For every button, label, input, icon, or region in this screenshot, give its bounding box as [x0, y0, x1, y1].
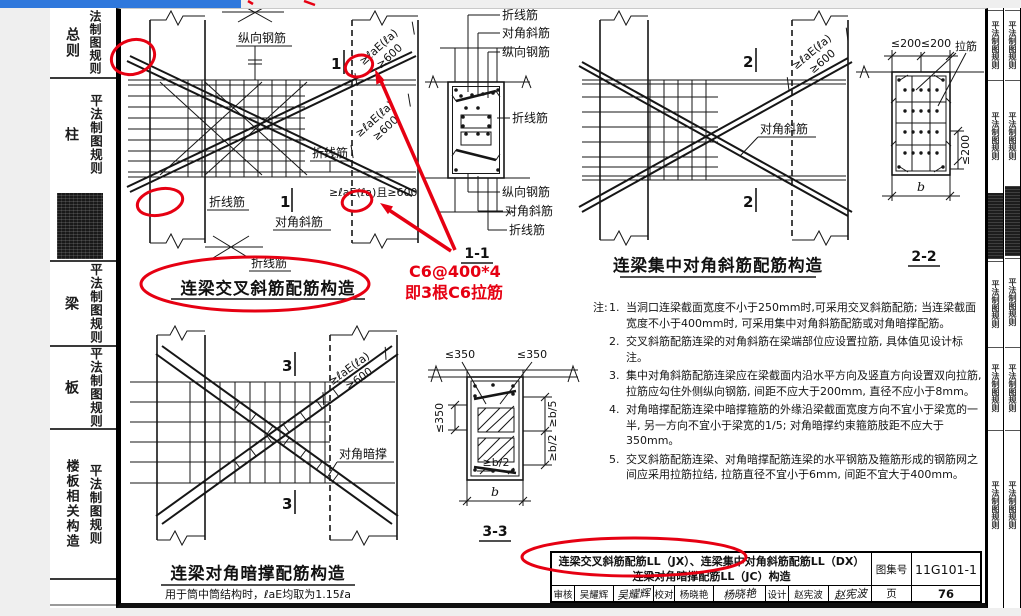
svg-text:≥b/2: ≥b/2 — [546, 435, 559, 462]
selected-tab-dark-block — [57, 193, 103, 259]
dim-ge-b5: ≥b/2 — [546, 435, 559, 462]
note-number: 4. — [609, 402, 620, 418]
svg-text:≥b/5: ≥b/5 — [546, 401, 559, 428]
design-label: 设计 — [766, 586, 789, 601]
label-folded-bar: 折线筋 — [209, 194, 245, 209]
svg-text:≤350: ≤350 — [433, 403, 446, 433]
figure-jx-section-1-1: 折线筋 对角斜筋 纵向钢筋 折线筋 纵向钢筋 对角斜筋 折线筋 1-1 — [425, 9, 553, 263]
right-tab: 平法制图规则 — [1005, 258, 1020, 345]
tab-general-label: 总则 — [62, 27, 82, 59]
right-tab-column: 平法制图规则 平法制图规则 平法制图规则 平法制图规则 平法制图规则 — [988, 8, 1004, 608]
dim-ge-b5: ≥b/5 — [546, 401, 559, 428]
section-marker-3: 3 — [282, 357, 292, 375]
section-marker-2: 2 — [743, 53, 753, 71]
label-diagonal-bar: 对角斜筋 — [760, 121, 808, 136]
section-label-1-1: 1-1 — [464, 246, 489, 262]
label-folded-bar: 折线筋 — [502, 9, 538, 22]
dim-le200-vert: ≤200 — [959, 135, 972, 165]
page-number: 76 — [912, 586, 980, 601]
note-item: 1. 当洞口连梁截面宽度不小于250mm时,可采用交叉斜筋配筋; 当连梁截面宽度… — [593, 300, 983, 331]
tab-slab-sub: 平法制图规则 — [86, 347, 105, 428]
tab-slab-related-label: 楼板相关构造 — [62, 459, 81, 549]
dim-le350: ≤350 — [445, 348, 475, 361]
section-marker-2: 2 — [743, 193, 753, 211]
right-tab-dark-block — [1005, 186, 1020, 256]
tab-divider — [50, 578, 116, 580]
credits-row: 审核 吴耀辉 吴耀辉 校对 杨晓艳 杨晓艳 设计 赵宪波 赵宪波 — [552, 586, 871, 601]
label-folded-bar: 折线筋 — [251, 255, 287, 270]
right-tab: 平法制图规则 — [988, 261, 1003, 345]
note-text: 集中对角斜筋配筋连梁应在梁截面内沿水平方向及竖直方向设置双向拉筋, 拉筋应勾住外… — [626, 369, 982, 398]
dim-le200: ≤200 — [891, 37, 921, 50]
label-longitudinal: 纵向钢筋 — [502, 184, 550, 199]
check-label: 校对 — [654, 586, 675, 601]
dim-anchor-length: ≥ℓaE(ℓa) ≥600 — [311, 339, 395, 410]
note-number: 1. — [609, 300, 620, 316]
tab-slab-label: 板 — [61, 380, 81, 396]
top-blue-bar — [0, 0, 241, 8]
figure-dx-section-2-2: ≤200 ≤200 拉筋 ≤200 b 2-2 — [856, 37, 984, 266]
tab-beam: 梁 平法制图规则 — [50, 262, 116, 345]
checker-name: 杨晓艳 — [675, 586, 714, 601]
svg-text:≤200: ≤200 — [959, 135, 972, 165]
label-diagonal-bar: 对角斜筋 — [502, 25, 550, 40]
designer-signature: 赵宪波 — [829, 586, 871, 601]
tab-column-label: 柱 — [61, 127, 81, 143]
note-text: 交叉斜筋配筋连梁的对角斜筋在梁端部位应设置拉筋, 具体值见设计标注。 — [626, 335, 963, 364]
notes-list: 1. 当洞口连梁截面宽度不小于250mm时,可采用交叉斜筋配筋; 当连梁截面宽度… — [593, 300, 983, 483]
label-folded-bar: 折线筋 — [509, 222, 545, 237]
figure-notes: 注: 1. 当洞口连梁截面宽度不小于250mm时,可采用交叉斜筋配筋; 当连梁截… — [593, 300, 983, 486]
right-tab: 平法制图规则 — [1005, 430, 1020, 578]
figure-jx-title: 连梁交叉斜筋配筋构造 — [181, 278, 356, 298]
label-folded-bar: 折线筋 — [512, 110, 548, 125]
tab-column: 柱 平法制图规则 — [50, 79, 116, 190]
label-diagonal-bar: 对角斜筋 — [275, 214, 323, 229]
dim-anchor-and-600: ≥ℓaE(ℓa)且≥600 — [329, 186, 418, 199]
note-item: 4. 对角暗撑配筋连梁中暗撑箍筋的外缘沿梁截面宽度方向不宜小于梁宽的一半, 另一… — [593, 402, 983, 449]
figure-jc-title: 连梁对角暗撑配筋构造 — [171, 563, 346, 583]
note-text: 当洞口连梁截面宽度不小于250mm时,可采用交叉斜筋配筋; 当连梁截面宽度不小于… — [626, 301, 976, 330]
dim-le200: ≤200 — [921, 37, 951, 50]
figure-jx-plan: 纵向钢筋 1 1 ≥ℓaE(ℓa) ≥600 ≥ℓaE(ℓa) ≥600 ≥ℓa… — [127, 9, 424, 299]
dim-ge-b2: ≥b/2 — [483, 456, 510, 469]
folded-bar-symbol — [205, 236, 263, 258]
label-longitudinal: 纵向钢筋 — [238, 30, 286, 45]
atlas-number: 11G101-1 — [912, 553, 980, 585]
dim-b: b — [491, 484, 499, 499]
label-longitudinal: 纵向钢筋 — [502, 44, 550, 59]
label-tie-bar: 拉筋 — [955, 39, 977, 53]
figure-dx-title: 连梁集中对角斜筋配筋构造 — [613, 255, 823, 275]
figure-jc-plan: 3 3 ≥ℓaE(ℓa) ≥600 对角暗撑 连梁对角暗撑配筋构造 用于筒中筒结… — [130, 326, 398, 601]
note-text: 对角暗撑配筋连梁中暗撑箍筋的外缘沿梁截面宽度方向不宜小于梁宽的一半, 另一方向不… — [626, 403, 978, 447]
sheet-title-line1: 连梁交叉斜筋配筋LL（JX）、连梁集中对角斜筋配筋LL（DX） — [559, 554, 865, 569]
review-label: 审核 — [552, 586, 575, 601]
right-tab-dark-block — [988, 193, 1003, 259]
atlas-label: 图集号 — [872, 553, 912, 585]
atlas-number-row: 图集号 11G101-1 — [872, 553, 980, 586]
right-tab: 平法制图规则 — [1005, 80, 1020, 190]
note-item: 5. 交叉斜筋配筋连梁、对角暗撑配筋连梁的水平钢筋及箍筋形成的钢筋网之间应采用拉… — [593, 452, 983, 483]
figure-jc-section-3-3: ≤350 ≤350 ≤350 ≥b/5 ≥b/2 ≥b/2 b 3-3 — [428, 348, 579, 541]
scanned-atlas-page-view: { "colors": { "top_bar_blue": "#2f78dc",… — [0, 0, 1021, 616]
right-tab-column: 平法制图规则 平法制图规则 平法制图规则 平法制图规则 平法制图规则 — [1005, 8, 1021, 608]
section-label-3-3: 3-3 — [482, 524, 507, 540]
section-marker-1: 1 — [331, 55, 341, 73]
tab-slab: 板 平法制图规则 — [50, 347, 116, 428]
tab-general: 总则 法制图规则 — [50, 8, 116, 77]
figure-dx-plan: 2 2 ≥ℓaE(ℓa) ≥600 对角斜筋 连梁集中对角斜筋配筋构造 — [579, 11, 857, 277]
right-tab: 平法制图规则 — [988, 347, 1003, 428]
tab-beam-label: 梁 — [61, 296, 81, 312]
note-text: 交叉斜筋配筋连梁、对角暗撑配筋连梁的水平钢筋及箍筋形成的钢筋网之间应采用拉筋拉结… — [626, 453, 978, 482]
title-block: 连梁交叉斜筋配筋LL（JX）、连梁集中对角斜筋配筋LL（DX） 连梁对角暗撑配筋… — [550, 551, 982, 603]
label-diagonal-bar: 对角斜筋 — [505, 203, 553, 218]
section-label-2-2: 2-2 — [911, 249, 936, 265]
note-item: 2. 交叉斜筋配筋连梁的对角斜筋在梁端部位应设置拉筋, 具体值见设计标注。 — [593, 334, 983, 365]
red-stray-marks — [248, 1, 315, 5]
reviewer-name: 吴耀辉 — [575, 586, 614, 601]
folded-bar-symbol — [222, 9, 284, 22]
checker-signature: 杨晓艳 — [714, 586, 766, 601]
page-number-row: 页 76 — [872, 586, 980, 601]
dim-le350: ≤350 — [517, 348, 547, 361]
right-tab: 平法制图规则 — [1005, 10, 1020, 78]
tab-slab-related-sub: 平法制图规则 — [86, 464, 105, 545]
right-index-tabs: 平法制图规则 平法制图规则 平法制图规则 平法制图规则 平法制图规则 平法制图规… — [988, 8, 1021, 608]
note-item: 3. 集中对角斜筋配筋连梁应在梁截面内沿水平方向及竖直方向设置双向拉筋, 拉筋应… — [593, 368, 983, 399]
tab-general-sub: 法制图规则 — [87, 10, 104, 75]
brace-section-hatch — [478, 406, 514, 462]
sheet-title: 连梁交叉斜筋配筋LL（JX）、连梁集中对角斜筋配筋LL（DX） 连梁对角暗撑配筋… — [552, 553, 871, 586]
reviewer-signature: 吴耀辉 — [614, 586, 654, 601]
section-marker-3: 3 — [282, 495, 292, 513]
dim-b: b — [917, 179, 925, 194]
right-tab: 平法制图规则 — [988, 80, 1003, 190]
sheet-title-line2: 连梁对角暗撑配筋LL（JC）构造 — [632, 569, 790, 584]
page-label: 页 — [872, 586, 912, 601]
dim-anchor-length: ≥ℓaE(ℓa) ≥600 — [339, 86, 419, 162]
label-diagonal-brace: 对角暗撑 — [339, 446, 387, 461]
tab-slab-related: 楼板相关构造 平法制图规则 — [50, 430, 116, 578]
dim-le350-vert: ≤350 — [433, 403, 446, 433]
right-tab: 平法制图规则 — [988, 10, 1003, 78]
tab-column-sub: 平法制图规则 — [86, 94, 105, 175]
atlas-sheet: 纵向钢筋 1 1 ≥ℓaE(ℓa) ≥600 ≥ℓaE(ℓa) ≥600 ≥ℓa… — [116, 8, 988, 608]
section-marker-1: 1 — [280, 193, 290, 211]
left-index-tabs: 总则 法制图规则 柱 平法制图规则 梁 平法制图规则 板 平法制图规则 楼板相关… — [50, 8, 116, 608]
sidebar-bottom-line — [50, 604, 116, 606]
designer-name: 赵宪波 — [789, 586, 829, 601]
tab-beam-sub: 平法制图规则 — [86, 263, 105, 344]
label-folded-bar: 折线筋 — [312, 145, 348, 160]
note-number: 5. — [609, 452, 620, 468]
note-number: 3. — [609, 368, 620, 384]
note-number: 2. — [609, 334, 620, 350]
right-tab: 平法制图规则 — [1005, 347, 1020, 428]
figure-jc-subtitle: 用于筒中筒结构时，ℓaE均取为1.15ℓa — [165, 587, 351, 601]
right-tab: 平法制图规则 — [988, 430, 1003, 578]
